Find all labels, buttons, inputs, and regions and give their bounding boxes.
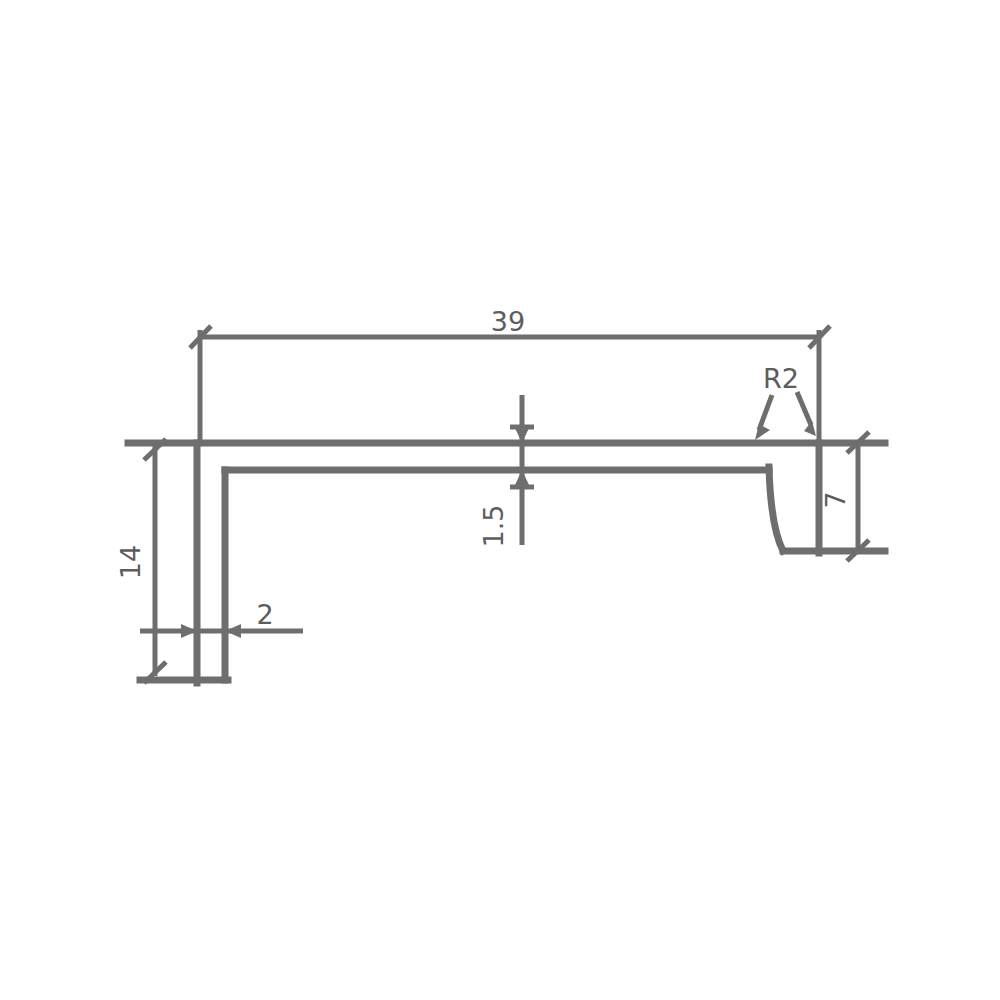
dimension-label-right-flange-height: 7 xyxy=(820,491,851,508)
radius-callout: R2 xyxy=(755,363,816,440)
profile-dimension-drawing: 39 14 2 1.5 7 R2 xyxy=(0,0,1000,1000)
dimension-left-flange-height: 14 xyxy=(115,439,166,683)
radius-label: R2 xyxy=(763,363,799,394)
dimension-label-foot-thickness: 2 xyxy=(256,599,273,630)
drawing-canvas: 39 14 2 1.5 7 R2 xyxy=(0,0,1000,1000)
dimension-label-left-height: 14 xyxy=(115,545,146,579)
leader-arrowhead xyxy=(755,424,770,440)
dimension-label-overall-width: 39 xyxy=(491,306,525,337)
radius-leader-line-left xyxy=(759,395,772,430)
dimension-label-web-thickness: 1.5 xyxy=(478,505,509,548)
profile-outline xyxy=(128,443,885,683)
dimension-overall-width: 39 xyxy=(190,306,830,440)
right-flange-inner-edge xyxy=(769,467,783,551)
dimension-right-flange-height: 7 xyxy=(820,432,869,561)
radius-leader-line-right xyxy=(797,392,811,425)
